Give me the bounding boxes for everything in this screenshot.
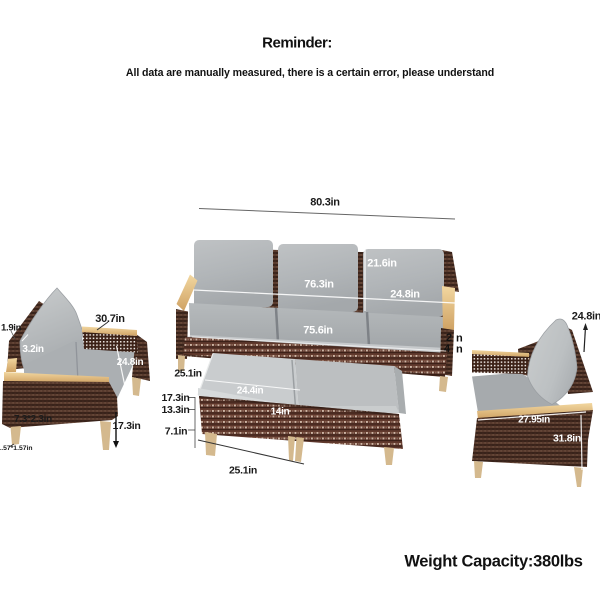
svg-text:24.8in: 24.8in	[572, 311, 600, 323]
svg-text:3.2in: 3.2in	[22, 344, 43, 355]
svg-text:80.3in: 80.3in	[310, 197, 340, 209]
svg-text:25.1in: 25.1in	[229, 465, 257, 477]
svg-text:14in: 14in	[271, 407, 290, 418]
svg-text:17.3in: 17.3in	[162, 392, 190, 404]
svg-text:24.8in: 24.8in	[117, 357, 144, 368]
svg-text:1.9in: 1.9in	[1, 323, 22, 334]
svg-text:24.4in: 24.4in	[237, 386, 264, 397]
svg-text:24.8in: 24.8in	[390, 289, 420, 301]
svg-text:25.1in: 25.1in	[174, 368, 201, 380]
svg-text:All data are manually measured: All data are manually measured, there is…	[126, 67, 494, 79]
svg-text:7.3*2.3in: 7.3*2.3in	[14, 414, 52, 425]
svg-text:76.3in: 76.3in	[304, 279, 334, 291]
svg-text:4: 4	[444, 343, 451, 355]
svg-text:13.3in: 13.3in	[162, 404, 190, 416]
svg-text:27.95in: 27.95in	[518, 415, 550, 426]
svg-text:Reminder:: Reminder:	[262, 35, 332, 52]
svg-text:n: n	[456, 344, 463, 356]
svg-text:31.8in: 31.8in	[553, 433, 581, 445]
svg-text:1.57*1.57in: 1.57*1.57in	[0, 445, 33, 452]
svg-text:21.6in: 21.6in	[367, 258, 397, 270]
svg-text:Weight Capacity:380lbs: Weight Capacity:380lbs	[404, 553, 582, 571]
svg-text:7.1in: 7.1in	[165, 426, 187, 438]
svg-text:75.6in: 75.6in	[303, 325, 333, 337]
svg-text:17.3in: 17.3in	[113, 420, 141, 432]
svg-text:30.7in: 30.7in	[95, 313, 125, 325]
